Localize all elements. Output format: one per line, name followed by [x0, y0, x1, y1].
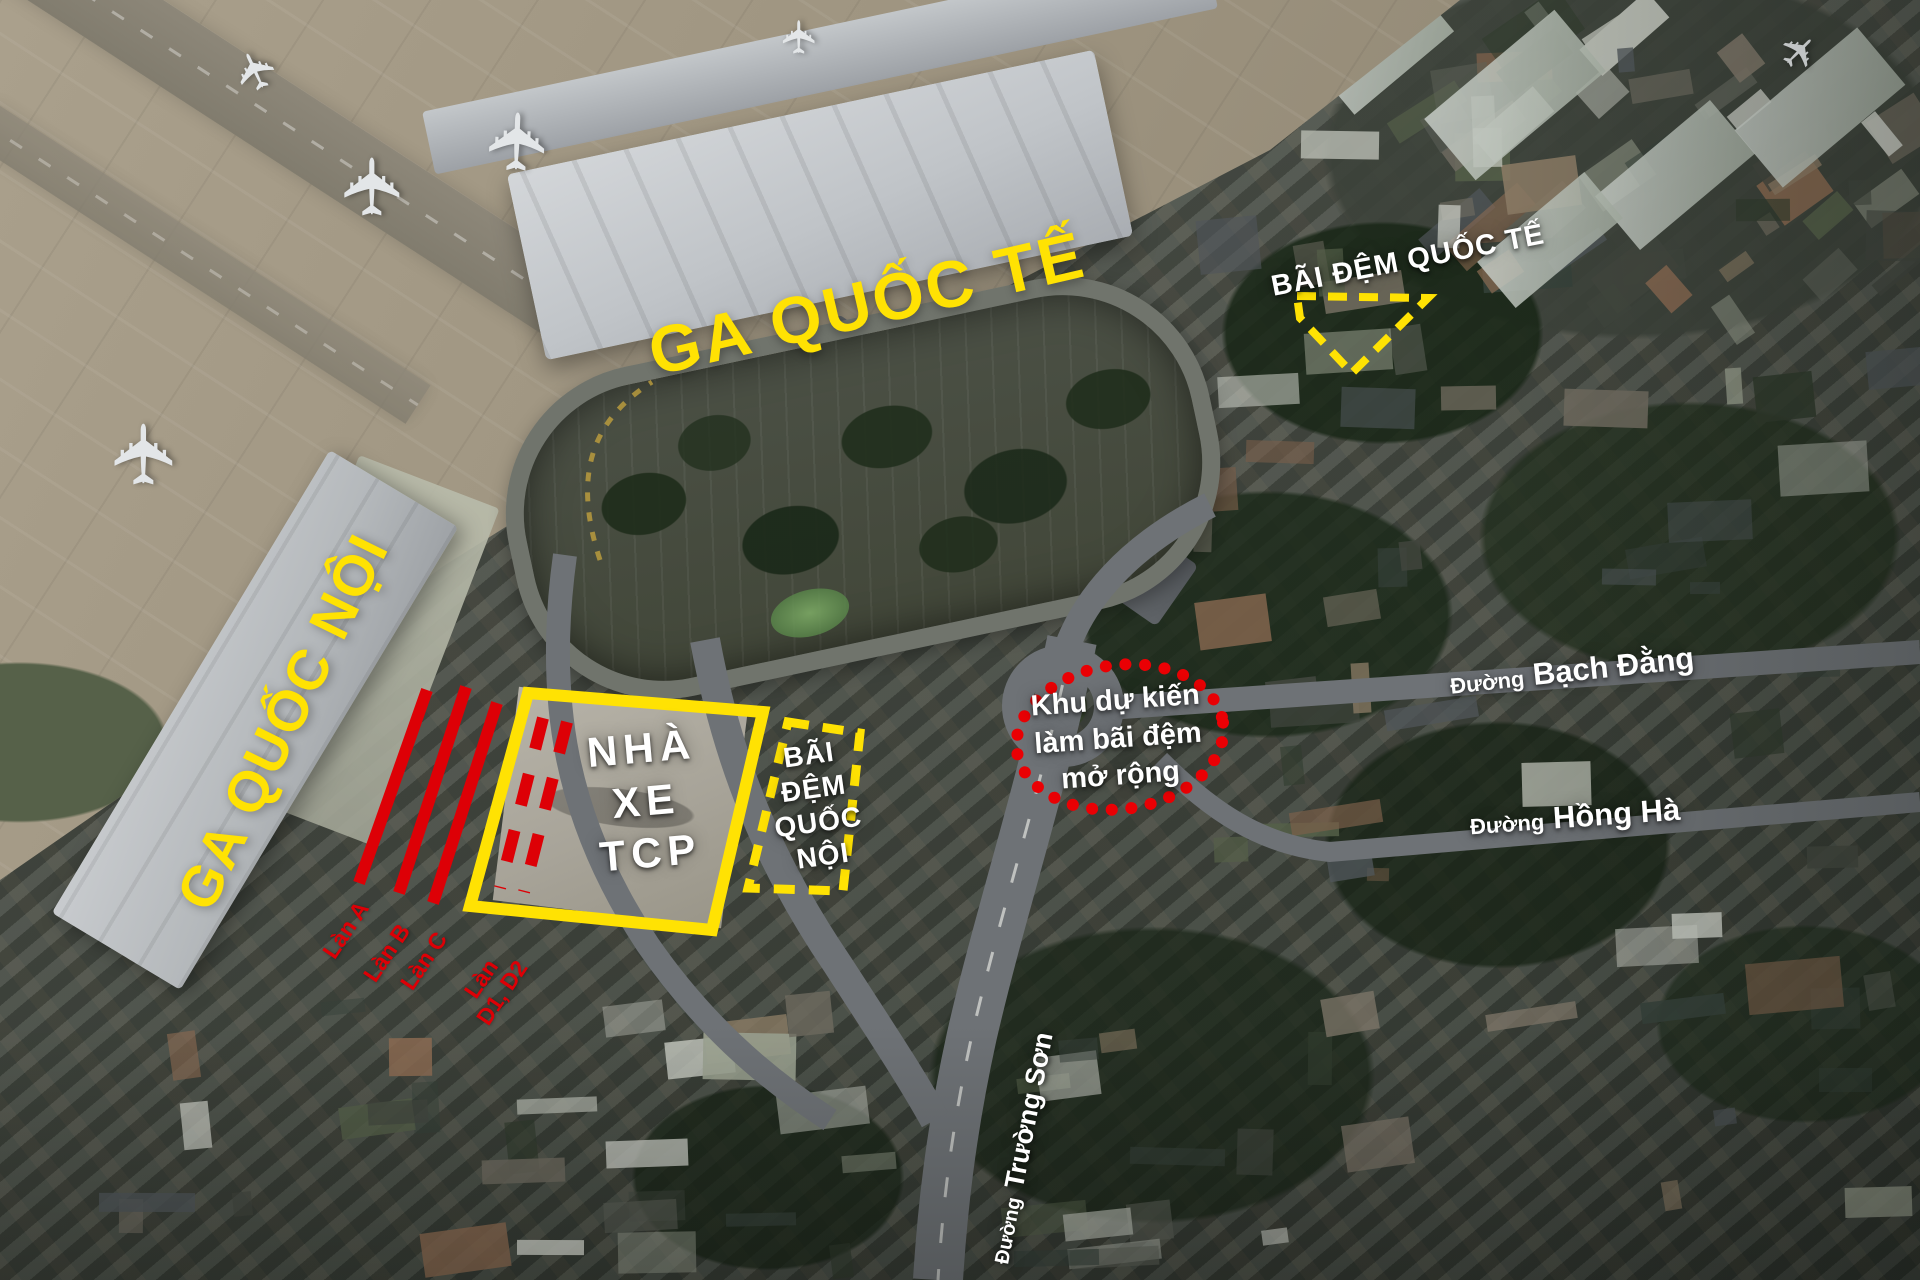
lane-c-line [433, 703, 497, 903]
lane-b-line [399, 687, 466, 893]
domestic-buffer-label: BÃI ĐỆM QUỐC NỘI [763, 732, 869, 880]
tcp-parking-label-line2: XE [589, 770, 702, 832]
tcp-parking-label: NHÀ XE TCP [585, 718, 707, 884]
annotated-satellite-map: ✈ ✈ ✈ ✈ ✈ ✈ GA QUỐC TẾ GA QUỐC NỘI BÃI Đ… [0, 0, 1920, 1280]
expansion-area-label: Khu dự kiến làm bãi đệm mở rộng [1030, 677, 1207, 802]
tcp-parking-label-line3: TCP [594, 822, 707, 884]
tcp-parking-label-line1: NHÀ [585, 718, 698, 780]
street-prefix: Đường [1469, 809, 1545, 840]
international-buffer-outline [1297, 296, 1428, 373]
street-prefix: Đường [1449, 666, 1526, 700]
